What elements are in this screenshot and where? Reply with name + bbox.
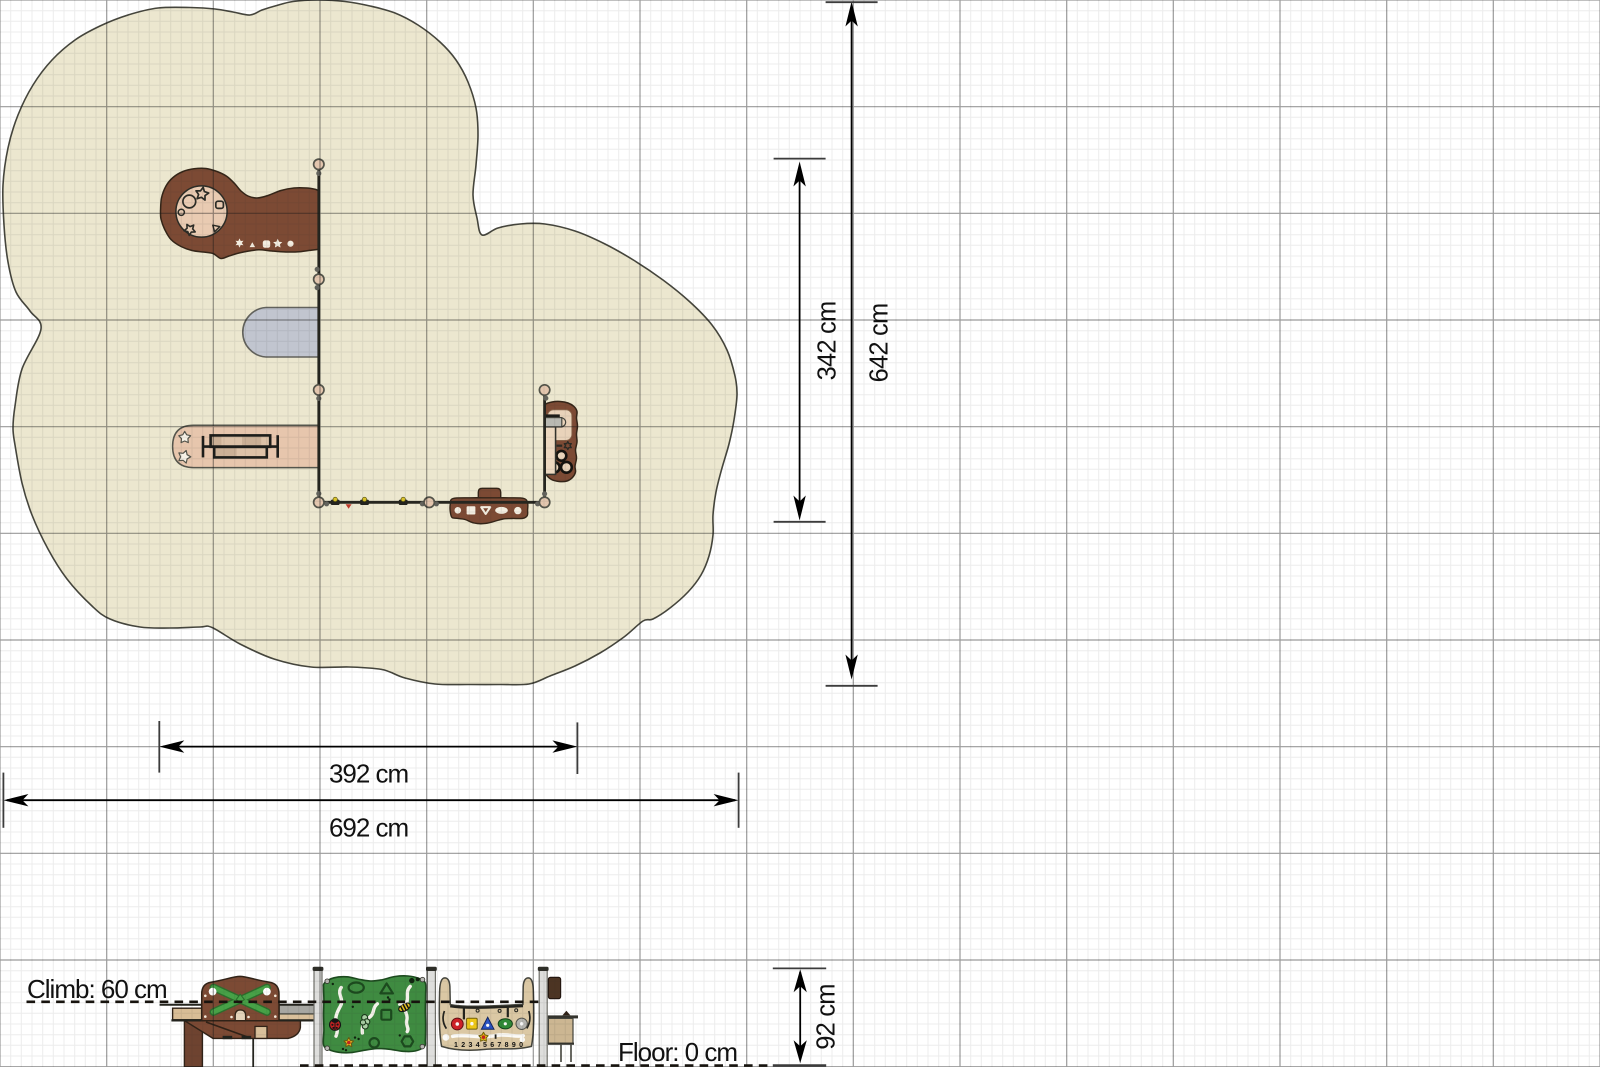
svg-text:342 cm: 342 cm (813, 302, 841, 381)
svg-text:Floor: 0 cm: Floor: 0 cm (618, 1037, 737, 1067)
svg-text:692 cm: 692 cm (329, 813, 408, 843)
svg-text:642 cm: 642 cm (865, 304, 893, 383)
svg-text:Climb: 60 cm: Climb: 60 cm (27, 974, 167, 1004)
svg-text:392 cm: 392 cm (329, 759, 408, 789)
svg-text:92 cm: 92 cm (812, 984, 840, 1049)
